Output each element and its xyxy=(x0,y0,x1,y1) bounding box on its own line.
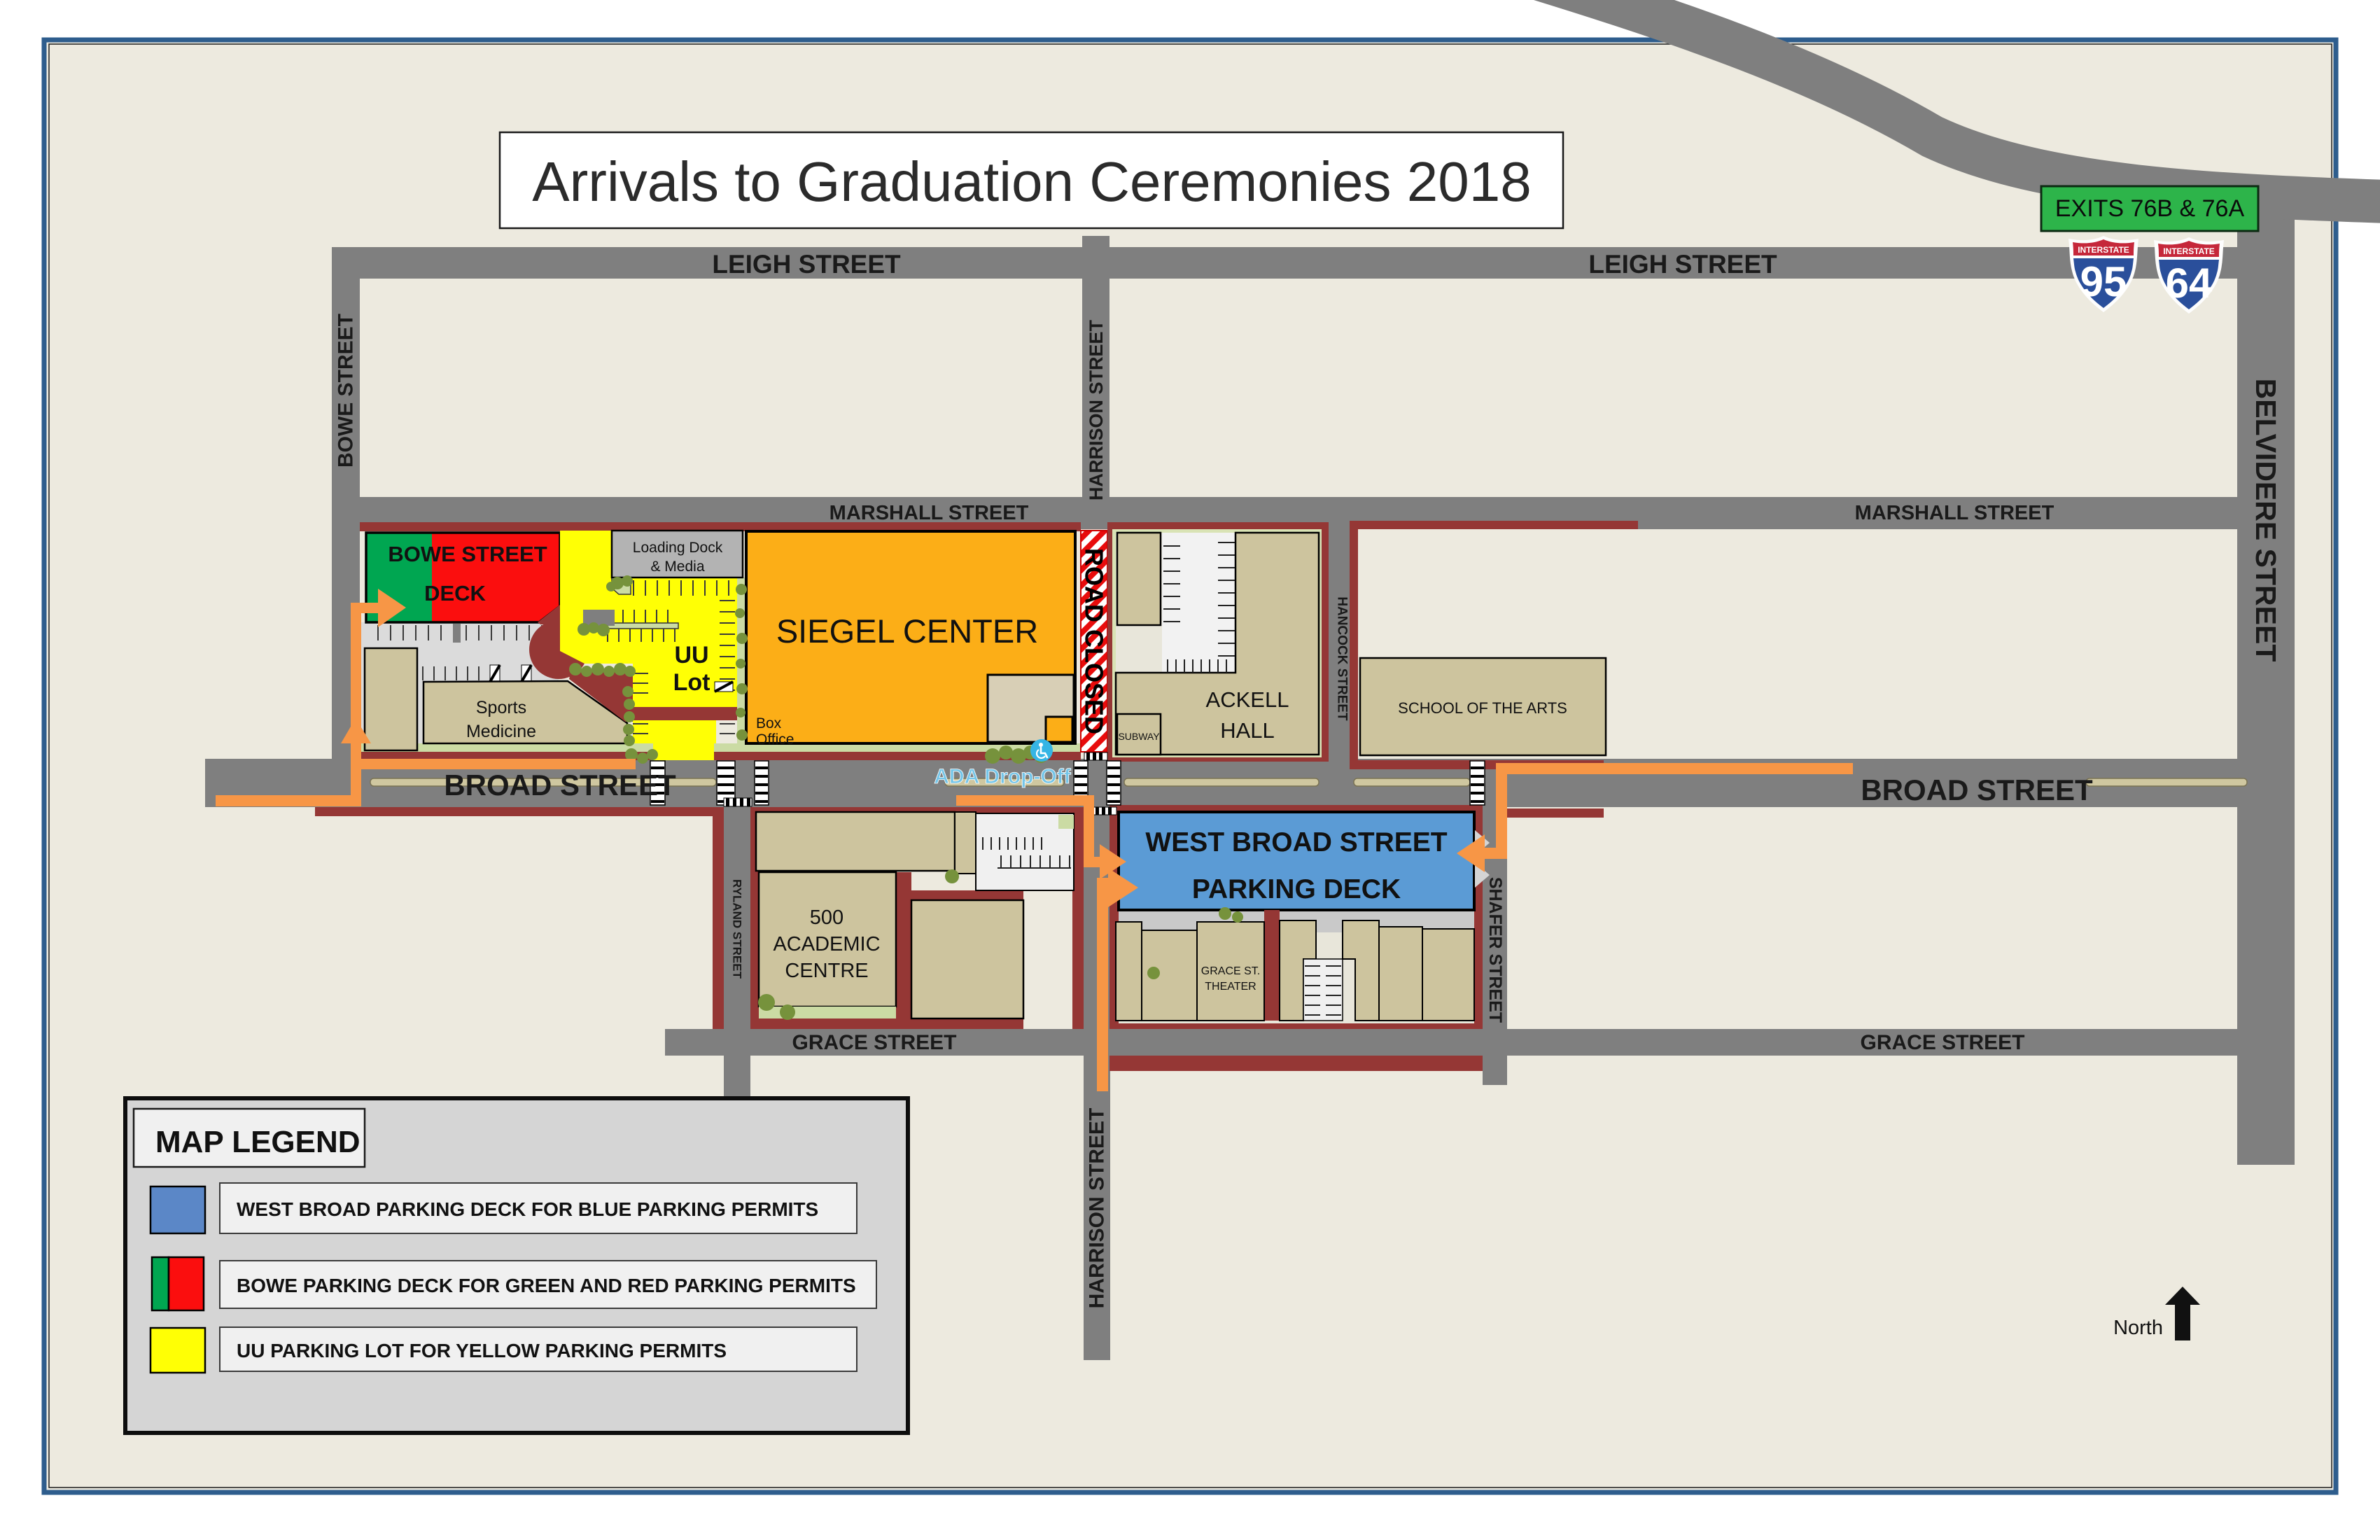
svg-text:BOWE STREET: BOWE STREET xyxy=(335,314,358,468)
svg-text:SIEGEL CENTER: SIEGEL CENTER xyxy=(776,612,1038,650)
svg-text:INTERSTATE: INTERSTATE xyxy=(2163,246,2215,256)
svg-text:INTERSTATE: INTERSTATE xyxy=(2078,245,2129,255)
svg-text:GRACE ST.: GRACE ST. xyxy=(1201,965,1260,977)
svg-text:SUBWAY: SUBWAY xyxy=(1118,731,1160,742)
svg-text:Box: Box xyxy=(756,715,782,731)
svg-text:MAP LEGEND: MAP LEGEND xyxy=(155,1125,360,1159)
svg-text:BELVIDERE STREET: BELVIDERE STREET xyxy=(2250,379,2282,662)
svg-text:PARKING DECK: PARKING DECK xyxy=(1192,874,1401,904)
svg-text:MARSHALL STREET: MARSHALL STREET xyxy=(1855,502,2054,524)
svg-text:BOWE STREET: BOWE STREET xyxy=(388,542,547,566)
svg-text:LEIGH STREET: LEIGH STREET xyxy=(712,250,901,279)
svg-text:MARSHALL STREET: MARSHALL STREET xyxy=(829,502,1029,524)
svg-text:UU PARKING LOT FOR YELLOW PARK: UU PARKING LOT FOR YELLOW PARKING PERMIT… xyxy=(237,1340,727,1361)
svg-text:& Media: & Media xyxy=(650,559,704,575)
svg-text:RYLAND STREET: RYLAND STREET xyxy=(731,879,744,979)
svg-text:ADA Drop-Off: ADA Drop-Off xyxy=(934,765,1072,788)
svg-text:ACADEMIC: ACADEMIC xyxy=(773,933,880,955)
svg-text:HANCOCK STREET: HANCOCK STREET xyxy=(1335,596,1350,721)
svg-text:Sports: Sports xyxy=(476,698,526,717)
svg-text:UU: UU xyxy=(674,642,708,668)
svg-text:BOWE PARKING DECK FOR GREEN AN: BOWE PARKING DECK FOR GREEN AND RED PARK… xyxy=(237,1275,856,1296)
svg-text:HARRISON STREET: HARRISON STREET xyxy=(1086,1108,1109,1309)
svg-text:GRACE STREET: GRACE STREET xyxy=(1860,1031,2024,1054)
svg-text:SCHOOL OF THE ARTS: SCHOOL OF THE ARTS xyxy=(1398,699,1567,717)
svg-text:Medicine: Medicine xyxy=(466,722,536,741)
svg-text:Arrivals to Graduation Ceremon: Arrivals to Graduation Ceremonies 2018 xyxy=(532,150,1531,213)
svg-text:GRACE STREET: GRACE STREET xyxy=(792,1031,956,1054)
svg-text:THEATER: THEATER xyxy=(1205,981,1256,993)
svg-text:EXITS 76B & 76A: EXITS 76B & 76A xyxy=(2055,195,2245,222)
svg-text:500: 500 xyxy=(810,906,843,929)
svg-text:ROAD CLOSED: ROAD CLOSED xyxy=(1080,548,1109,734)
svg-text:Lot: Lot xyxy=(673,669,710,696)
svg-text:BROAD STREET: BROAD STREET xyxy=(444,769,676,801)
svg-text:DECK: DECK xyxy=(424,581,486,605)
svg-text:CENTRE: CENTRE xyxy=(785,960,868,982)
svg-text:Loading Dock: Loading Dock xyxy=(633,540,723,556)
svg-text:LEIGH STREET: LEIGH STREET xyxy=(1588,250,1777,279)
svg-text:WEST BROAD STREET: WEST BROAD STREET xyxy=(1145,827,1447,857)
svg-text:SHAFER STREET: SHAFER STREET xyxy=(1485,877,1505,1023)
svg-text:WEST BROAD PARKING DECK FOR BL: WEST BROAD PARKING DECK FOR BLUE PARKING… xyxy=(237,1198,818,1220)
svg-text:HALL: HALL xyxy=(1220,718,1275,743)
svg-text:64: 64 xyxy=(2166,260,2213,307)
svg-text:BROAD STREET: BROAD STREET xyxy=(1861,773,2093,806)
svg-text:North: North xyxy=(2113,1317,2163,1339)
svg-text:95: 95 xyxy=(2080,258,2127,305)
svg-text:ACKELL: ACKELL xyxy=(1206,687,1289,712)
svg-text:Office: Office xyxy=(756,731,794,748)
svg-text:HARRISON STREET: HARRISON STREET xyxy=(1086,319,1107,500)
